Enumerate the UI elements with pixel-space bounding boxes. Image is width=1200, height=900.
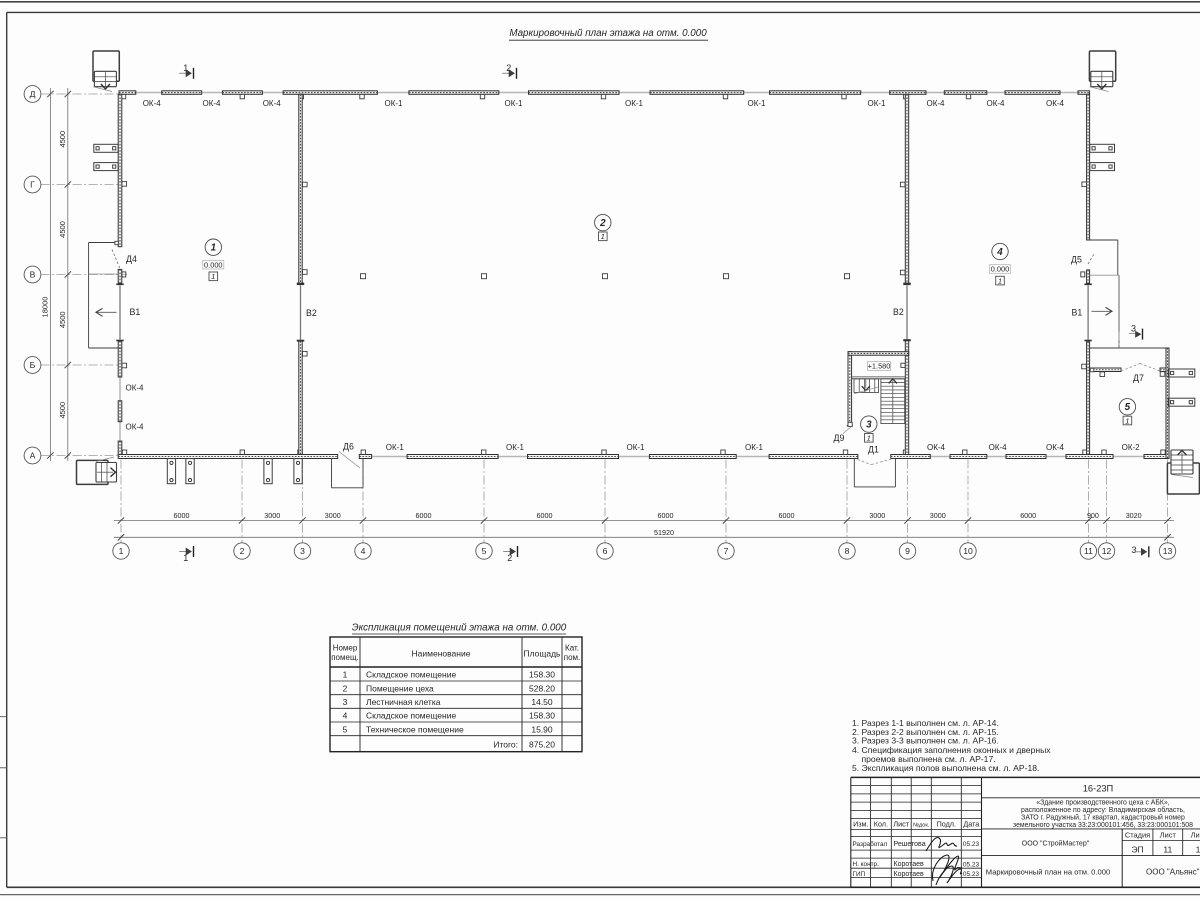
svg-text:Г: Г [30, 180, 35, 190]
svg-text:Д4: Д4 [126, 254, 137, 264]
svg-text:5: 5 [1125, 402, 1131, 413]
svg-text:15.90: 15.90 [531, 724, 553, 734]
svg-text:14.50: 14.50 [531, 697, 553, 707]
svg-text:ОК-1: ОК-1 [506, 443, 525, 452]
svg-text:Разработал: Разработал [853, 840, 888, 848]
svg-text:Коротаев: Коротаев [894, 871, 925, 878]
svg-text:расположенное по адресу: Влади: расположенное по адресу: Владимирская об… [1021, 806, 1185, 814]
svg-text:ЭП: ЭП [1131, 844, 1143, 854]
svg-text:6000: 6000 [537, 511, 553, 520]
svg-text:7: 7 [724, 546, 729, 556]
svg-text:Изм.: Изм. [853, 819, 868, 828]
svg-text:Коротаев: Коротаев [894, 861, 925, 868]
svg-text:158.30: 158.30 [529, 670, 555, 680]
svg-text:2: 2 [343, 683, 348, 693]
svg-text:Подл.: Подл. [937, 819, 956, 828]
svg-text:Маркировочный план этажа на от: Маркировочный план этажа на отм. 0.000 [509, 28, 707, 39]
svg-text:ОК-4: ОК-4 [927, 99, 946, 108]
svg-text:3: 3 [866, 420, 872, 431]
svg-text:ОК-4: ОК-4 [126, 422, 145, 431]
svg-text:1: 1 [1196, 844, 1200, 854]
svg-text:Д5: Д5 [1071, 255, 1082, 265]
svg-text:6000: 6000 [416, 511, 432, 520]
svg-text:ООО "Альянс": ООО "Альянс" [1146, 867, 1200, 876]
svg-text:Помещение цеха: Помещение цеха [366, 683, 434, 693]
svg-text:9: 9 [905, 546, 910, 556]
svg-text:ОК-4: ОК-4 [989, 443, 1008, 452]
svg-text:В: В [30, 270, 36, 280]
svg-text:13: 13 [1163, 546, 1173, 556]
svg-text:+1.580: +1.580 [868, 362, 891, 371]
svg-text:05.23: 05.23 [963, 861, 980, 868]
svg-text:ОК-1: ОК-1 [745, 443, 764, 452]
svg-text:ОК-2: ОК-2 [1122, 443, 1141, 452]
svg-text:Складское помещение: Складское помещение [366, 670, 456, 680]
svg-text:4500: 4500 [58, 131, 67, 148]
svg-text:Д1: Д1 [868, 445, 879, 455]
svg-text:В2: В2 [306, 308, 317, 318]
svg-text:Кат.: Кат. [565, 644, 579, 653]
svg-text:ОК-1: ОК-1 [627, 443, 646, 452]
svg-text:Решетова: Решетова [894, 841, 926, 848]
svg-text:4: 4 [343, 711, 348, 721]
svg-text:Маркировочный план на отм. 0.0: Маркировочный план на отм. 0.000 [986, 867, 1110, 876]
svg-text:5: 5 [343, 724, 348, 734]
svg-text:3020: 3020 [1126, 511, 1142, 520]
svg-text:ОК-1: ОК-1 [625, 99, 644, 108]
svg-text:ОК-4: ОК-4 [263, 99, 282, 108]
svg-text:4500: 4500 [58, 311, 67, 328]
svg-text:ООО "СтройМастер": ООО "СтройМастер" [1022, 839, 1090, 847]
svg-text:В2: В2 [893, 307, 904, 317]
svg-text:ОК-4: ОК-4 [927, 443, 946, 452]
svg-text:Лист: Лист [893, 819, 909, 828]
svg-text:1: 1 [998, 277, 1002, 286]
svg-text:Д7: Д7 [1133, 373, 1144, 383]
svg-text:Кол.: Кол. [874, 819, 888, 828]
svg-text:Экспликация помещений этажа на: Экспликация помещений этажа на отм. 0.00… [352, 623, 567, 634]
svg-text:6000: 6000 [779, 511, 795, 520]
svg-text:5: 5 [482, 546, 487, 556]
svg-text:ОК-1: ОК-1 [868, 99, 887, 108]
svg-text:3: 3 [1131, 545, 1136, 555]
svg-text:ОК-4: ОК-4 [987, 99, 1006, 108]
svg-text:ОК-4: ОК-4 [203, 99, 222, 108]
svg-text:ОК-1: ОК-1 [385, 99, 404, 108]
svg-text:51920: 51920 [654, 528, 674, 537]
svg-text:11: 11 [1163, 844, 1172, 854]
svg-text:ОК-4: ОК-4 [1046, 99, 1065, 108]
svg-text:пом.: пом. [564, 653, 581, 662]
svg-text:05.23: 05.23 [963, 871, 980, 878]
svg-text:05.23: 05.23 [963, 841, 980, 848]
svg-text:875.20: 875.20 [529, 740, 555, 750]
svg-text:6: 6 [603, 546, 608, 556]
svg-text:«Здание производственного цеха: «Здание производственного цеха с АБК», [1036, 799, 1169, 806]
svg-text:900: 900 [1087, 511, 1099, 520]
svg-text:1: 1 [211, 272, 215, 281]
svg-text:помещ.: помещ. [331, 653, 359, 662]
svg-text:Техническое помещение: Техническое помещение [366, 724, 464, 734]
svg-text:12: 12 [1102, 546, 1112, 556]
svg-text:8: 8 [845, 546, 850, 556]
svg-text:А: А [30, 451, 36, 461]
svg-text:3000: 3000 [325, 511, 341, 520]
svg-text:1: 1 [343, 670, 348, 680]
svg-text:Дата: Дата [963, 819, 979, 828]
svg-text:3: 3 [300, 546, 305, 556]
svg-text:В1: В1 [130, 307, 141, 317]
svg-text:Лис: Лис [1191, 831, 1200, 840]
svg-text:Наименование: Наименование [412, 649, 471, 659]
svg-text:Д9: Д9 [834, 433, 845, 443]
svg-text:0.000: 0.000 [991, 265, 1010, 274]
svg-text:Итого:: Итого: [493, 740, 518, 750]
svg-text:6000: 6000 [174, 511, 190, 520]
svg-text:№док.: №док. [913, 823, 930, 829]
svg-text:4: 4 [361, 546, 366, 556]
svg-text:6000: 6000 [1020, 511, 1036, 520]
svg-text:3000: 3000 [264, 511, 280, 520]
svg-text:ОК-4: ОК-4 [1046, 443, 1065, 452]
svg-text:Стадия: Стадия [1125, 831, 1150, 840]
svg-text:Номер: Номер [333, 644, 358, 653]
svg-text:5. Экспликация полов выполнена: 5. Экспликация полов выполнена см. л. АР… [852, 763, 1039, 773]
svg-text:В1: В1 [1072, 308, 1083, 318]
svg-text:Н. контр.: Н. контр. [853, 861, 880, 868]
svg-text:10: 10 [963, 546, 973, 556]
svg-text:4: 4 [996, 247, 1003, 258]
svg-text:1: 1 [867, 434, 871, 443]
svg-text:3000: 3000 [930, 511, 946, 520]
svg-text:11: 11 [1084, 546, 1093, 556]
svg-text:0.000: 0.000 [204, 260, 223, 269]
svg-text:3000: 3000 [869, 511, 885, 520]
svg-text:6000: 6000 [658, 511, 674, 520]
svg-text:2: 2 [240, 546, 245, 556]
svg-text:земельного участка 33:23:00010: земельного участка 33:23:000101:456, 33:… [1013, 822, 1193, 829]
svg-text:ГИП: ГИП [853, 871, 866, 878]
svg-text:1: 1 [119, 546, 124, 556]
svg-text:Складское помещение: Складское помещение [366, 711, 456, 721]
svg-text:Лестничная клетка: Лестничная клетка [366, 697, 441, 707]
svg-text:Б: Б [30, 360, 36, 370]
svg-text:158.30: 158.30 [529, 711, 555, 721]
svg-text:ОК-4: ОК-4 [126, 384, 145, 393]
svg-text:ЗАТО г. Радужный, 17 квартал,: ЗАТО г. Радужный, 17 квартал, кадастровы… [1021, 813, 1185, 821]
svg-text:528.20: 528.20 [529, 683, 555, 693]
svg-text:4500: 4500 [58, 221, 67, 238]
svg-text:16-23П: 16-23П [1083, 784, 1113, 794]
svg-text:1: 1 [601, 232, 605, 241]
svg-text:ОК-4: ОК-4 [143, 99, 162, 108]
svg-text:3: 3 [343, 697, 348, 707]
svg-text:Д: Д [30, 89, 36, 99]
svg-text:2: 2 [599, 218, 606, 229]
svg-text:Площадь: Площадь [523, 649, 561, 659]
svg-text:4500: 4500 [58, 402, 67, 419]
svg-text:ОК-1: ОК-1 [748, 99, 767, 108]
svg-text:ОК-1: ОК-1 [505, 99, 524, 108]
svg-text:1: 1 [1125, 416, 1129, 425]
svg-text:1: 1 [211, 243, 216, 254]
svg-text:Лист: Лист [1160, 831, 1177, 840]
svg-text:18000: 18000 [41, 297, 50, 318]
svg-text:Д6: Д6 [343, 441, 354, 451]
svg-text:ОК-1: ОК-1 [386, 443, 405, 452]
